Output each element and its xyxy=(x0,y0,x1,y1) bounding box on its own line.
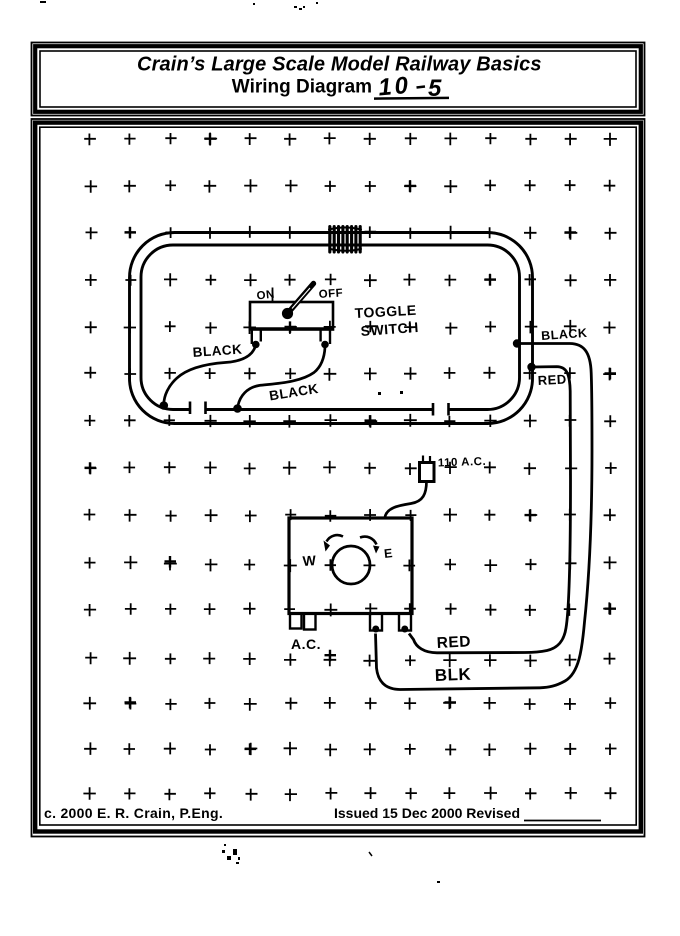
svg-text:RED: RED xyxy=(537,372,567,388)
svg-text:TOGGLE: TOGGLE xyxy=(354,302,417,321)
svg-text:10: 10 xyxy=(377,72,412,102)
svg-text:A.C.: A.C. xyxy=(291,636,321,652)
svg-text:OFF: OFF xyxy=(318,287,343,301)
svg-text:Issued 15 Dec 2000 Revised: Issued 15 Dec 2000 Revised xyxy=(334,805,520,821)
svg-text:E: E xyxy=(383,546,393,561)
svg-text:BLK: BLK xyxy=(434,665,471,685)
svg-text:W: W xyxy=(302,552,317,569)
svg-text:RED: RED xyxy=(436,633,471,652)
svg-text:c. 2000 E. R. Crain, P.Eng.: c. 2000 E. R. Crain, P.Eng. xyxy=(44,805,223,821)
svg-text:Crain’s Large Scale Model Rail: Crain’s Large Scale Model Railway Basics xyxy=(137,54,542,76)
svg-text:110 A.C.: 110 A.C. xyxy=(438,456,487,470)
svg-text:Wiring Diagram: Wiring Diagram xyxy=(232,77,372,98)
